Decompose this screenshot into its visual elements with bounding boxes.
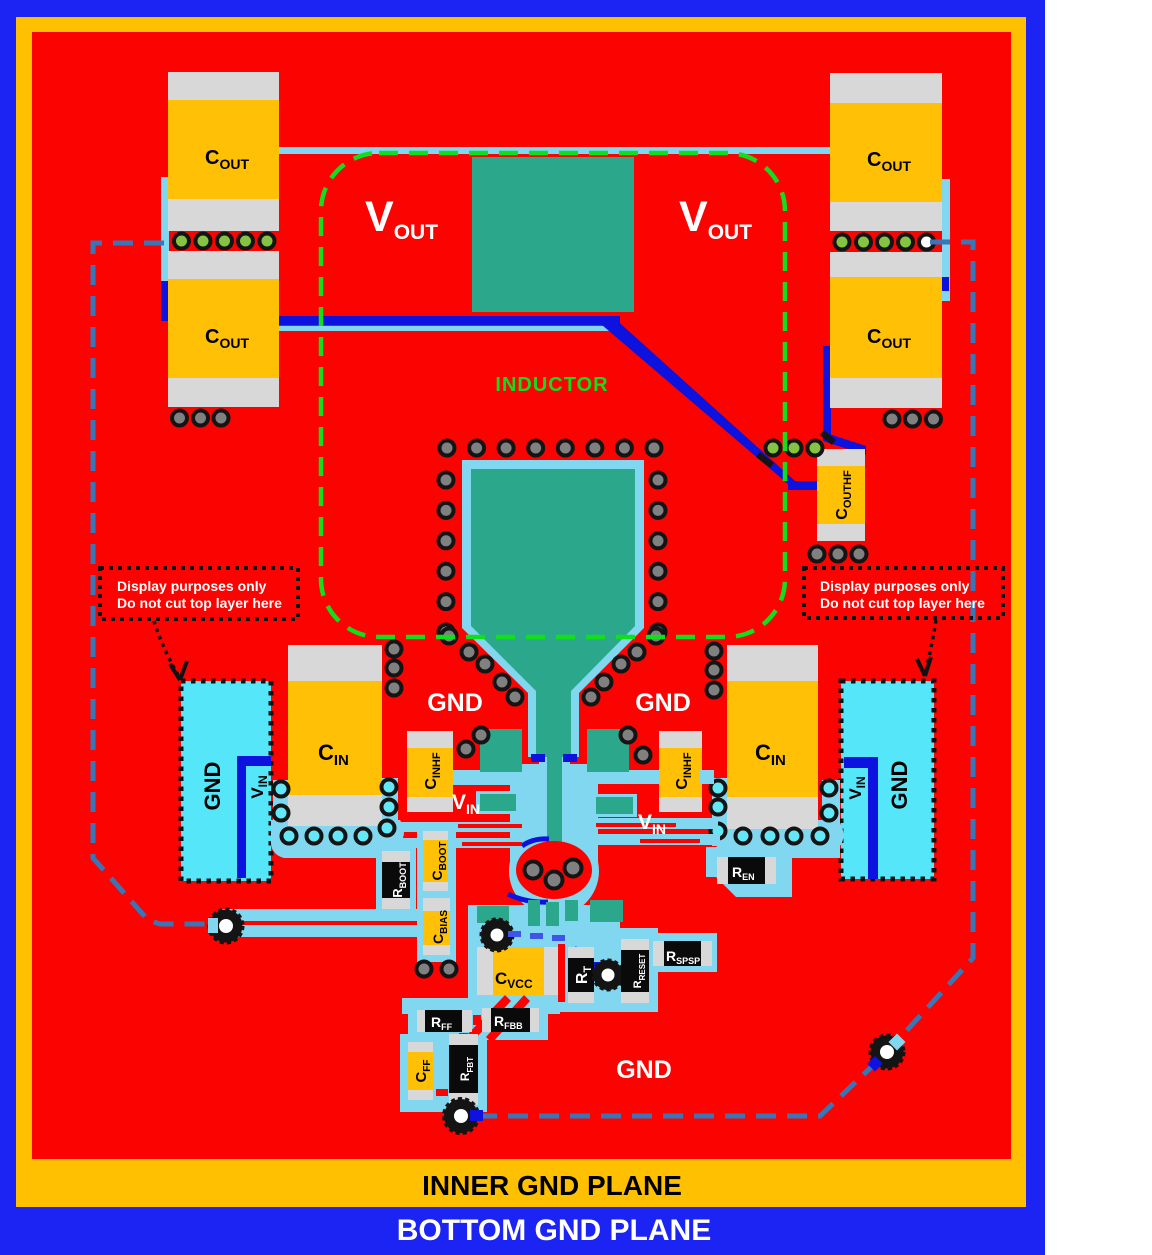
svg-text:INNER GND PLANE: INNER GND PLANE bbox=[422, 1170, 682, 1201]
svg-text:GND: GND bbox=[200, 762, 225, 811]
svg-text:INDUCTOR: INDUCTOR bbox=[495, 374, 608, 396]
svg-text:BOTTOM GND PLANE: BOTTOM GND PLANE bbox=[397, 1214, 711, 1247]
svg-text:GND: GND bbox=[887, 761, 912, 810]
svg-text:GND: GND bbox=[427, 689, 483, 717]
svg-text:Do not cut top layer here: Do not cut top layer here bbox=[820, 595, 985, 611]
svg-text:GND: GND bbox=[635, 689, 691, 717]
svg-text:Display purposes only: Display purposes only bbox=[820, 578, 970, 594]
svg-text:GND: GND bbox=[616, 1056, 672, 1084]
svg-text:Do not cut top layer here: Do not cut top layer here bbox=[117, 595, 282, 611]
svg-text:Display purposes only: Display purposes only bbox=[117, 578, 267, 594]
